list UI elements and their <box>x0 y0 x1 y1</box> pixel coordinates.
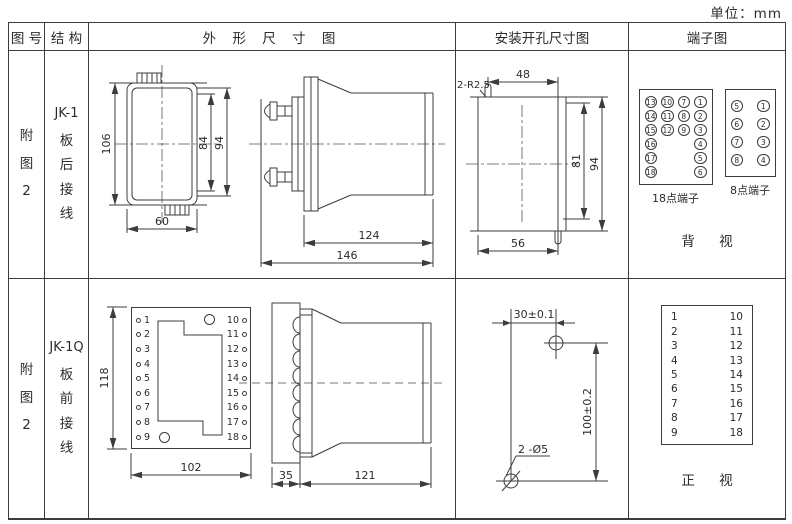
terminal-number: 4 <box>671 355 678 367</box>
terminal-block-8-label: 8点端子 <box>730 182 770 198</box>
terminal-list-item: 2 <box>671 324 678 338</box>
terminal-row: 62 <box>731 118 770 131</box>
terminal-point: 7 <box>731 136 744 149</box>
install-drawing-jk1q: 30±0.1 100±0.2 2 -Ø5 <box>456 279 628 518</box>
terminal-list-item: 4 <box>136 357 150 372</box>
terminal-number: 3 <box>671 340 678 352</box>
terminal-row: 175 <box>645 152 707 165</box>
row-jk1: 附图2 JK-1板后接线 <box>9 51 786 279</box>
terminal-cell-2: 123456789 101112131415161718 正 视 <box>629 279 786 519</box>
terminal-point: 5 <box>694 152 707 165</box>
terminal-list-item: 4 <box>671 353 678 367</box>
terminal-diagram-front: 123456789 101112131415161718 正 视 <box>629 279 785 518</box>
terminal-row: 51 <box>731 100 770 113</box>
terminal-point: 11 <box>661 110 674 123</box>
terminal-point: 8 <box>678 110 691 123</box>
panel-terminals-left: 123456789 <box>136 313 150 444</box>
terminal-point: 2 <box>694 110 707 123</box>
terminal-point: 6 <box>694 166 707 179</box>
terminal-list-item: 5 <box>671 368 678 382</box>
dim-56-label: 56 <box>511 237 525 250</box>
vertical-text-char: 后 <box>60 159 74 173</box>
terminal-number: 6 <box>671 383 678 395</box>
terminal-block-front: 123456789 101112131415161718 <box>661 305 753 445</box>
terminal-row: 84 <box>731 154 770 167</box>
dim-102-label: 102 <box>181 461 202 474</box>
terminal-point: 4 <box>757 154 770 167</box>
terminal-point: 1 <box>694 96 707 109</box>
vertical-text-char: JK-1Q <box>49 341 83 354</box>
header-fig-no: 图 号 <box>9 23 45 51</box>
vertical-text-char: 接 <box>60 184 74 198</box>
terminal-list-item: 8 <box>671 411 678 425</box>
vertical-text-char: 图 <box>20 158 34 172</box>
header-install: 安装开孔尺寸图 <box>456 23 629 51</box>
terminal-diagram-rear: 131071141182151293164175186 18点端子 516273… <box>629 51 785 278</box>
table-header-row: 图 号 结 构 外 形 尺 寸 图 安装开孔尺寸图 端子图 <box>9 23 786 51</box>
terminal-row: 131071 <box>645 96 707 109</box>
outline-drawing-jk1: 106 84 94 60 <box>89 51 455 278</box>
terminal-list-item: 9 <box>136 430 150 445</box>
terminal-number: 18 <box>730 427 743 439</box>
terminal-number: 15 <box>730 383 743 395</box>
terminal-list-item: 1 <box>671 310 678 324</box>
terminal-point: 5 <box>731 100 744 113</box>
terminal-list-item: 11 <box>227 328 247 343</box>
terminal-gap <box>661 152 674 165</box>
terminal-number: 18 <box>227 432 239 443</box>
terminal-number: 4 <box>144 359 150 370</box>
front-view-label: 正 视 <box>671 469 742 489</box>
terminal-list-item: 1 <box>136 313 150 328</box>
terminal-list-item: 2 <box>136 328 150 343</box>
vertical-text-char: 板 <box>60 135 74 149</box>
install-cell-1: 48 2-R2.5 81 94 56 <box>456 51 629 279</box>
terminal-number: 7 <box>671 398 678 410</box>
terminal-list-item: 10 <box>730 310 743 324</box>
terminal-number: 11 <box>730 326 743 338</box>
terminal-point: 16 <box>645 138 658 151</box>
terminal-screw-icon <box>136 420 141 425</box>
fig-no-1: 附图2 <box>9 51 44 278</box>
dim-118-label: 118 <box>98 368 111 389</box>
terminal-number: 7 <box>144 402 150 413</box>
vertical-text-char: 2 <box>22 419 31 433</box>
header-outline: 外 形 尺 寸 图 <box>89 23 456 51</box>
terminal-screw-icon <box>136 318 141 323</box>
terminal-screw-icon <box>242 420 247 425</box>
terminal-screw-icon <box>242 347 247 352</box>
panel-terminals-right: 101112131415161718 <box>227 313 247 444</box>
terminal-point: 2 <box>757 118 770 131</box>
terminal-number: 10 <box>227 315 239 326</box>
terminal-point: 13 <box>645 96 658 109</box>
drawing-sheet: 单位：mm 图 号 结 构 外 形 尺 寸 图 安装开孔尺寸图 端子图 附图2 … <box>0 0 792 524</box>
vertical-text-char: 图 <box>20 392 34 406</box>
terminal-number: 2 <box>144 329 150 340</box>
terminal-list-item: 12 <box>227 342 247 357</box>
unit-label: 单位：mm <box>710 2 782 22</box>
header-structure: 结 构 <box>45 23 89 51</box>
terminal-number: 16 <box>730 398 743 410</box>
fig-no-cell-1: 附图2 <box>9 51 45 279</box>
fig-no-2: 附图2 <box>9 279 44 518</box>
terminal-number: 1 <box>144 315 150 326</box>
vertical-text-char: 线 <box>60 442 74 456</box>
install-drawing-jk1: 48 2-R2.5 81 94 56 <box>456 51 628 278</box>
terminal-point: 17 <box>645 152 658 165</box>
outline-cell-1: 106 84 94 60 <box>89 51 456 279</box>
mounting-hole-bottom <box>159 432 170 443</box>
terminal-screw-icon <box>242 332 247 337</box>
vertical-text-char: 线 <box>60 208 74 222</box>
terminal-list-item: 13 <box>730 353 743 367</box>
terminal-number: 10 <box>730 311 743 323</box>
terminal-gap <box>678 138 691 151</box>
dim-94-cutout-label: 94 <box>588 157 601 171</box>
terminal-gap <box>661 138 674 151</box>
terminal-list-item: 17 <box>227 415 247 430</box>
terminal-screw-icon <box>242 391 247 396</box>
dim-81-label: 81 <box>570 154 583 168</box>
terminal-number: 14 <box>227 373 239 384</box>
terminal-number: 12 <box>730 340 743 352</box>
terminal-point: 3 <box>694 124 707 137</box>
mounting-hole-top <box>204 314 215 325</box>
terminal-number: 17 <box>227 417 239 428</box>
header-terminal: 端子图 <box>629 23 786 51</box>
terminal-list-item: 9 <box>671 426 678 440</box>
terminal-screw-icon <box>242 318 247 323</box>
terminal-point: 18 <box>645 166 658 179</box>
terminal-point: 4 <box>694 138 707 151</box>
terminal-number: 8 <box>144 417 150 428</box>
terminal-number: 3 <box>144 344 150 355</box>
terminal-list-item: 6 <box>136 386 150 401</box>
terminal-screw-icon <box>136 376 141 381</box>
spec-table: 图 号 结 构 外 形 尺 寸 图 安装开孔尺寸图 端子图 附图2 JK-1板后… <box>8 22 786 520</box>
terminal-screw-icon <box>136 391 141 396</box>
terminal-number: 11 <box>227 329 239 340</box>
terminal-list-item: 7 <box>136 401 150 416</box>
terminal-list-item: 10 <box>227 313 247 328</box>
structure-cell-1: JK-1板后接线 <box>45 51 89 279</box>
terminal-point: 9 <box>678 124 691 137</box>
terminal-screw-icon <box>136 435 141 440</box>
terminal-point: 12 <box>661 124 674 137</box>
terminal-number: 17 <box>730 412 743 424</box>
vertical-text-char: 前 <box>60 393 74 407</box>
dim-121-label: 121 <box>355 469 376 482</box>
terminal-list-item: 5 <box>136 371 150 386</box>
terminal-list-item: 17 <box>730 411 743 425</box>
terminal-row: 164 <box>645 138 707 151</box>
rear-view-label: 背 视 <box>671 230 742 250</box>
terminal-point: 14 <box>645 110 658 123</box>
terminal-block-8: 51627384 <box>725 89 776 177</box>
terminal-number: 13 <box>227 359 239 370</box>
terminal-list-item: 7 <box>671 397 678 411</box>
terminal-front-right: 101112131415161718 <box>730 310 743 440</box>
terminal-screw-icon <box>136 347 141 352</box>
terminal-number: 9 <box>671 427 678 439</box>
terminal-number: 1 <box>671 311 678 323</box>
structure-cell-2: JK-1Q板前接线 <box>45 279 89 519</box>
terminal-list-item: 16 <box>730 397 743 411</box>
terminal-number: 8 <box>671 412 678 424</box>
terminal-screw-icon <box>242 362 247 367</box>
terminal-screw-icon <box>136 332 141 337</box>
slot-radius-label: 2-R2.5 <box>457 80 490 91</box>
front-panel: 123456789 101112131415161718 <box>131 307 251 449</box>
terminal-list-item: 18 <box>227 430 247 445</box>
fig-no-cell-2: 附图2 <box>9 279 45 519</box>
terminal-list-item: 14 <box>227 371 247 386</box>
terminal-front-left: 123456789 <box>671 310 678 440</box>
terminal-number: 5 <box>144 373 150 384</box>
dim-30-label: 30±0.1 <box>514 308 555 321</box>
install-cell-2: 30±0.1 100±0.2 2 -Ø5 <box>456 279 629 519</box>
dim-60-label: 60 <box>155 215 169 228</box>
terminal-list-item: 14 <box>730 368 743 382</box>
terminal-list-item: 16 <box>227 401 247 416</box>
vertical-text-char: 板 <box>60 369 74 383</box>
terminal-number: 5 <box>671 369 678 381</box>
terminal-gap <box>678 152 691 165</box>
dim-124-label: 124 <box>359 229 380 242</box>
terminal-screw-icon <box>242 405 247 410</box>
terminal-number: 9 <box>144 432 150 443</box>
terminal-block-18-label: 18点端子 <box>652 190 699 206</box>
terminal-row: 73 <box>731 136 770 149</box>
terminal-point: 6 <box>731 118 744 131</box>
vertical-text-char: 接 <box>60 418 74 432</box>
terminal-gap <box>661 166 674 179</box>
outline-cell-2: 118 102 <box>89 279 456 519</box>
terminal-screw-icon <box>242 435 247 440</box>
terminal-screw-icon <box>242 376 247 381</box>
terminal-list-item: 13 <box>227 357 247 372</box>
terminal-list-item: 3 <box>136 342 150 357</box>
vertical-text-char: 2 <box>22 185 31 199</box>
terminal-list-item: 15 <box>227 386 247 401</box>
terminal-point: 10 <box>661 96 674 109</box>
dim-94-label: 94 <box>213 136 226 150</box>
structure-2: JK-1Q板前接线 <box>45 279 88 518</box>
terminal-list-item: 11 <box>730 324 743 338</box>
terminal-row: 151293 <box>645 124 707 137</box>
terminal-number: 12 <box>227 344 239 355</box>
dim-100-label: 100±0.2 <box>581 388 594 436</box>
hole-size-label: 2 -Ø5 <box>518 443 548 456</box>
terminal-list-item: 3 <box>671 339 678 353</box>
terminal-list-item: 18 <box>730 426 743 440</box>
terminal-point: 8 <box>731 154 744 167</box>
terminal-screw-icon <box>136 362 141 367</box>
terminal-list-item: 8 <box>136 415 150 430</box>
terminal-list-item: 6 <box>671 382 678 396</box>
terminal-number: 2 <box>671 326 678 338</box>
terminal-point: 7 <box>678 96 691 109</box>
terminal-row: 186 <box>645 166 707 179</box>
terminal-number: 13 <box>730 355 743 367</box>
terminal-list-item: 15 <box>730 382 743 396</box>
terminal-number: 16 <box>227 402 239 413</box>
terminal-cell-1: 131071141182151293164175186 18点端子 516273… <box>629 51 786 279</box>
structure-1: JK-1板后接线 <box>45 51 88 278</box>
vertical-text-char: JK-1 <box>55 107 79 120</box>
dim-84-label: 84 <box>197 136 210 150</box>
dim-48-label: 48 <box>516 68 530 81</box>
terminal-point: 15 <box>645 124 658 137</box>
terminal-screw-icon <box>136 405 141 410</box>
terminal-list-item: 12 <box>730 339 743 353</box>
terminal-number: 6 <box>144 388 150 399</box>
terminal-point: 3 <box>757 136 770 149</box>
dim-146-label: 146 <box>337 249 358 262</box>
terminal-number: 14 <box>730 369 743 381</box>
dim-106-label: 106 <box>100 134 113 155</box>
vertical-text-char: 附 <box>20 364 34 378</box>
terminal-point: 1 <box>757 100 770 113</box>
terminal-block-18: 131071141182151293164175186 <box>639 89 713 185</box>
row-jk1q: 附图2 JK-1Q板前接线 118 <box>9 279 786 519</box>
vertical-text-char: 附 <box>20 130 34 144</box>
terminal-row: 141182 <box>645 110 707 123</box>
terminal-number: 15 <box>227 388 239 399</box>
terminal-gap <box>678 166 691 179</box>
dim-35-label: 35 <box>279 469 293 482</box>
